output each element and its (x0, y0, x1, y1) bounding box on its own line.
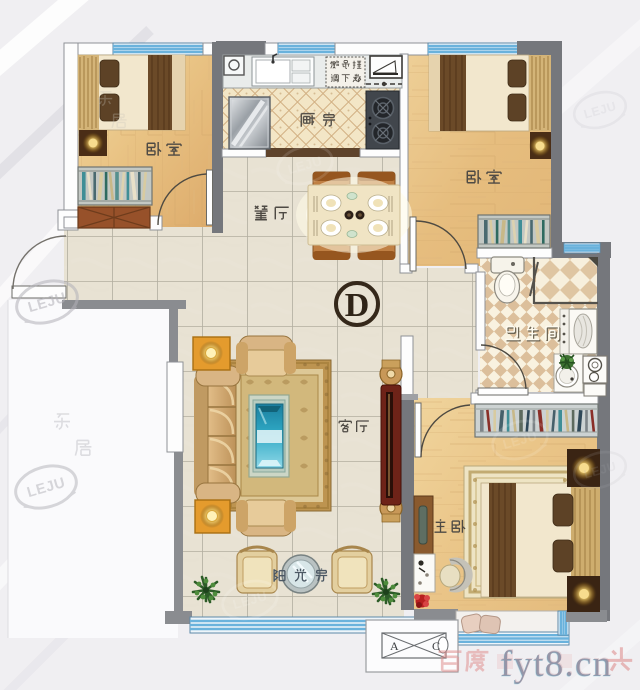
svg-text:fyt8.cn: fyt8.cn (501, 643, 613, 684)
svg-text:D: D (345, 287, 370, 324)
svg-text:A: A (390, 639, 399, 653)
